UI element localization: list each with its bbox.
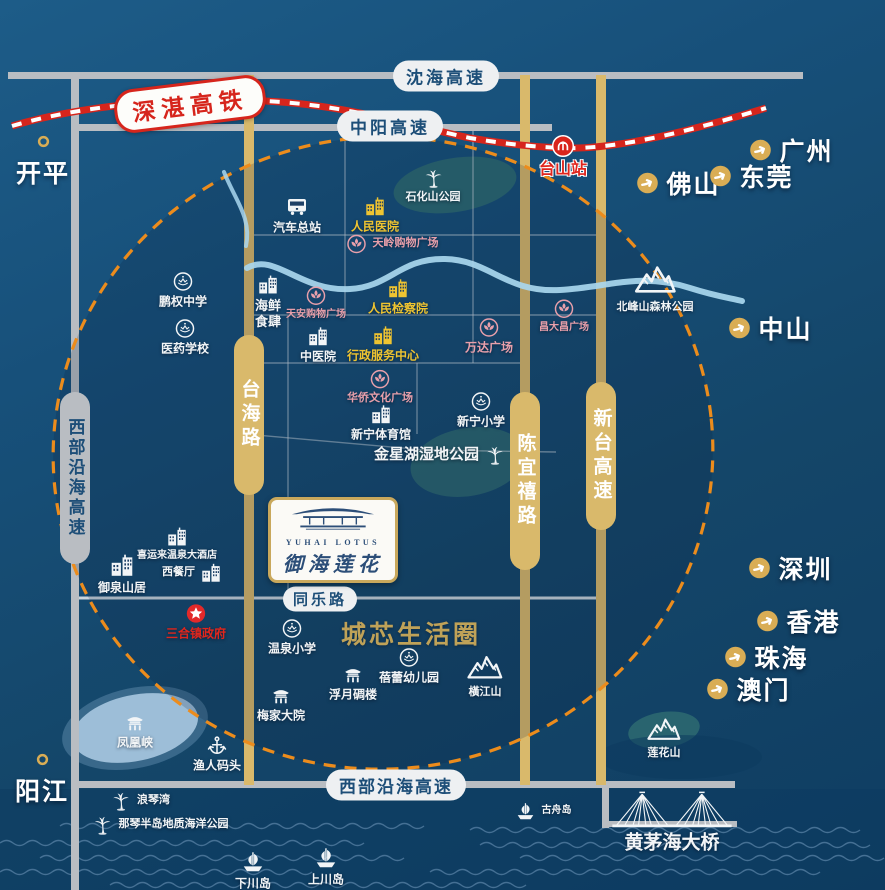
badge-icon: [172, 271, 194, 293]
map-landmark: 昌大昌广场: [539, 298, 589, 335]
landmark-label: 人民检察院: [368, 302, 428, 317]
city-name: 珠海: [754, 639, 808, 675]
plaza-icon: [553, 298, 575, 320]
map-landmark: 莲花山: [647, 711, 681, 761]
city-name: 澳门: [736, 671, 790, 707]
city-name: 开平: [16, 154, 70, 190]
map-landmark: 中医院: [300, 326, 336, 365]
landmark-label: 新宁小学: [457, 415, 505, 430]
landmark-label: 汽车总站: [273, 221, 321, 236]
map-landmark: 那琴半岛地质海洋公园: [92, 814, 229, 836]
arrow-circle-icon: [708, 164, 732, 188]
landmark-label: 上川岛: [308, 873, 344, 888]
map-landmark: 浪琴湾: [110, 790, 170, 812]
bus-icon: [285, 195, 309, 219]
building-icon: [257, 274, 279, 296]
city-label: 香港: [755, 603, 840, 639]
landmark-label: 古舟岛: [542, 805, 572, 818]
landmark-label: 下川岛: [235, 877, 271, 890]
landmark-label: 昌大昌广场: [539, 322, 589, 335]
boat-icon: [240, 849, 266, 875]
shenhai-expressway-pill: 沈海高速: [393, 61, 499, 92]
landmark-label: 北峰山森林公园: [617, 301, 694, 315]
road-name: 中阳高速: [350, 119, 430, 138]
map-landmark: 温泉小学: [268, 618, 316, 657]
landmark-label: 万达广场: [465, 341, 513, 356]
map-landmark: 医药学校: [161, 318, 209, 357]
map-landmark: 海鲜 食肆: [255, 274, 281, 331]
landmark-label: 莲花山: [648, 747, 681, 761]
map-landmark: 梅家大院: [257, 685, 305, 724]
road-name: 陈宜禧路: [516, 433, 535, 529]
landmark-label: 浮月碉楼: [329, 688, 377, 703]
landmark-label: 西餐厅: [162, 566, 195, 580]
boat-icon: [515, 800, 537, 822]
anchor-icon: [206, 735, 228, 757]
palm-icon: [110, 790, 132, 812]
palm-icon: [484, 444, 506, 466]
badge-icon: [281, 618, 303, 640]
city-label: 珠海: [723, 639, 808, 675]
city-name: 香港: [786, 603, 840, 639]
map-landmark: 台山站: [539, 134, 587, 180]
arrow-circle-icon: [747, 556, 771, 580]
pagoda-icon: [342, 664, 364, 686]
landmark-label: 天岭购物广场: [373, 237, 439, 251]
landmark-label: 渔人码头: [193, 759, 241, 774]
pagoda-icon: [124, 712, 146, 734]
map-landmark: 西餐厅: [162, 562, 222, 584]
landmark-label: 天安购物广场: [286, 309, 346, 322]
arrow-circle-icon: [635, 171, 659, 195]
city-name: 中山: [758, 310, 812, 346]
city-name: 深圳: [778, 550, 832, 586]
landmark-label: 橫江山: [469, 686, 502, 700]
building-icon: [364, 196, 386, 218]
mountain-icon: [647, 711, 681, 745]
city-name: 东莞: [739, 158, 793, 194]
map-landmark: 天岭购物广场: [346, 233, 439, 255]
map-landmark: 人民检察院: [368, 278, 428, 317]
landmark-label: 喜运来温泉大酒店: [137, 550, 217, 563]
badge-icon: [470, 391, 492, 413]
map-landmark: 上川岛: [308, 845, 344, 888]
road-name: 新台高速: [592, 408, 611, 504]
map-landmark: 蓓蕾幼儿园: [379, 647, 439, 686]
landmark-label: 中医院: [300, 350, 336, 365]
building-icon: [370, 404, 392, 426]
mountain-icon: [634, 257, 676, 299]
map-landmark: 石化山公园: [406, 167, 461, 205]
city-label: 中山: [727, 310, 812, 346]
ring-dot-icon: [35, 134, 50, 149]
project-name-cn: 御海莲花: [283, 548, 383, 577]
road-name: 西部沿海高速: [339, 778, 453, 797]
railway-name: 深湛高铁: [131, 86, 249, 126]
landmark-label: 石化山公园: [406, 191, 461, 205]
plaza-icon: [369, 368, 391, 390]
location-map: 台海路 陈宜禧路 新台高速 西部沿海高速 沈海高速 中阳高速 西部沿海高速 同乐…: [0, 0, 885, 890]
mountain-icon: [467, 648, 503, 684]
map-landmark: 鹏权中学: [159, 271, 207, 310]
city-label: 阳江: [15, 752, 69, 808]
xibu-south-expressway-pill: 西部沿海高速: [326, 770, 466, 801]
map-landmark: 凤凰峡: [117, 712, 153, 751]
landmark-label: 行政服务中心: [347, 349, 419, 364]
map-landmark: 金星湖湿地公园: [374, 444, 506, 466]
road-name: 沈海高速: [406, 69, 486, 88]
building-icon: [200, 562, 222, 584]
landmark-label: 金星湖湿地公园: [374, 446, 479, 465]
map-landmark: 橫江山: [467, 648, 503, 700]
map-landmark: 天安购物广场: [286, 285, 346, 322]
arrow-circle-icon: [723, 645, 747, 669]
map-landmark: 三合镇政府: [166, 603, 226, 642]
map-landmark: 黄茅海大桥: [610, 789, 734, 856]
building-icon: [387, 278, 409, 300]
map-landmark: 下川岛: [235, 849, 271, 890]
living-circle-headline: 城芯生活圈: [341, 615, 481, 651]
pavilion-icon: [285, 504, 381, 537]
landmark-label: 浪琴湾: [137, 794, 170, 808]
building-icon: [307, 326, 329, 348]
city-label: 深圳: [747, 550, 832, 586]
taihai-road-label: 台海路: [234, 335, 264, 495]
ring-dot-icon: [34, 752, 49, 767]
map-landmark: 浮月碉楼: [329, 664, 377, 703]
arrow-circle-icon: [755, 609, 779, 633]
landmark-label: 鹏权中学: [159, 295, 207, 310]
palm-icon: [422, 167, 444, 189]
landmark-label: 台山站: [539, 160, 587, 180]
xibu-west-expressway-label: 西部沿海高速: [60, 392, 90, 564]
plaza-icon: [478, 317, 500, 339]
project-name-en: YUHAI LOTUS: [286, 538, 380, 547]
map-landmark: 喜运来温泉大酒店: [137, 526, 217, 563]
landmark-label: 温泉小学: [268, 642, 316, 657]
building-icon: [372, 325, 394, 347]
pagoda-icon: [270, 685, 292, 707]
landmark-label: 新宁体育馆: [351, 428, 411, 443]
city-label: 澳门: [705, 671, 790, 707]
xintai-expressway-label: 新台高速: [586, 382, 616, 530]
landmark-label: 凤凰峡: [117, 736, 153, 751]
map-landmark: 北峰山森林公园: [617, 257, 694, 315]
map-landmark: 万达广场: [465, 317, 513, 356]
badge-icon: [174, 318, 196, 340]
arrow-circle-icon: [705, 677, 729, 701]
map-landmark: 华侨文化广场: [347, 368, 413, 406]
palm-icon: [92, 814, 114, 836]
arrow-circle-icon: [727, 316, 751, 340]
landmark-label: 那琴半岛地质海洋公园: [119, 818, 229, 832]
map-landmark: 汽车总站: [273, 195, 321, 236]
landmark-label: 海鲜 食肆: [255, 298, 281, 331]
plaza-icon: [305, 285, 327, 307]
map-landmark: 新宁体育馆: [351, 404, 411, 443]
plaza-icon: [346, 233, 368, 255]
building-icon: [109, 553, 135, 579]
landmark-label: 黄茅海大桥: [624, 832, 719, 856]
map-landmark: 渔人码头: [193, 735, 241, 774]
landmark-label: 蓓蕾幼儿园: [379, 671, 439, 686]
zhongyang-expressway-pill: 中阳高速: [337, 111, 443, 142]
tongle-road-pill: 同乐路: [283, 587, 357, 612]
building-icon: [166, 526, 188, 548]
map-landmark: 行政服务中心: [347, 325, 419, 364]
project-logo-card: YUHAI LOTUS 御海莲花: [268, 497, 398, 583]
map-landmark: 人民医院: [351, 196, 399, 235]
landmark-label: 梅家大院: [257, 709, 305, 724]
map-landmark: 新宁小学: [457, 391, 505, 430]
bridge-icon: [610, 789, 734, 830]
road-name: 同乐路: [293, 592, 347, 609]
road-name: 台海路: [240, 379, 259, 451]
landmark-label: 医药学校: [161, 342, 209, 357]
boat-icon: [313, 845, 339, 871]
city-name: 阳江: [15, 772, 69, 808]
landmark-label: 御泉山居: [98, 581, 146, 596]
landmark-label: 三合镇政府: [166, 627, 226, 642]
city-label: 开平: [16, 134, 70, 190]
road-name: 西部沿海高速: [67, 418, 84, 538]
chenyixi-road-label: 陈宜禧路: [510, 392, 540, 570]
city-label: 东莞: [708, 158, 793, 194]
map-landmark: 古舟岛: [515, 800, 572, 822]
star-icon: [185, 603, 207, 625]
rail-icon: [551, 134, 575, 158]
